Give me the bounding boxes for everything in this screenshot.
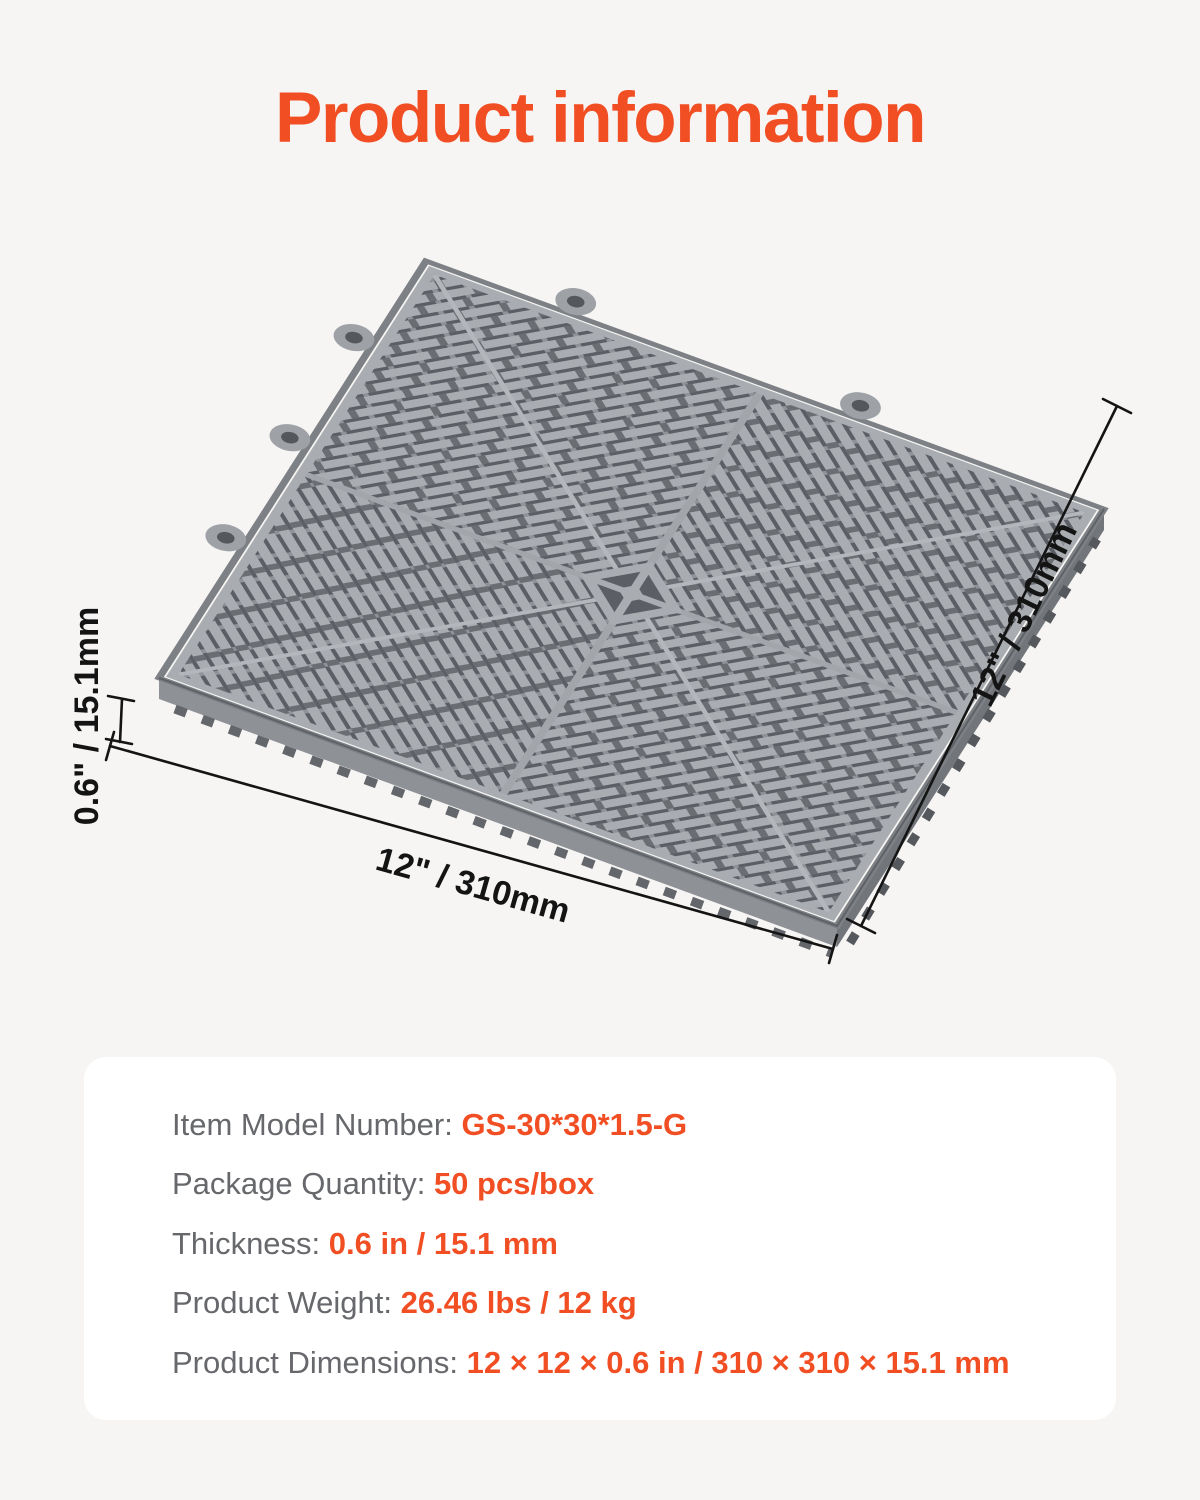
spec-label: Package Quantity: bbox=[172, 1166, 434, 1202]
spec-label: Product Weight: bbox=[172, 1285, 401, 1321]
dimension-label-bottom: 12" / 310mm bbox=[372, 840, 574, 931]
spec-row-dimensions: Product Dimensions: 12 × 12 × 0.6 in / 3… bbox=[172, 1333, 1076, 1393]
dimension-tick bbox=[1103, 399, 1131, 413]
thickness-marker bbox=[106, 696, 134, 744]
spec-row-model: Item Model Number: GS-30*30*1.5-G bbox=[172, 1095, 1076, 1155]
spec-label: Thickness: bbox=[172, 1226, 329, 1262]
dimension-tick bbox=[847, 919, 875, 933]
spec-row-thickness: Thickness: 0.6 in / 15.1 mm bbox=[172, 1214, 1076, 1274]
spec-value: 0.6 in / 15.1 mm bbox=[329, 1226, 558, 1262]
dimension-label-thickness: 0.6" / 15.1mm bbox=[68, 607, 106, 825]
spec-value: GS-30*30*1.5-G bbox=[461, 1107, 687, 1143]
spec-card: Item Model Number: GS-30*30*1.5-G Packag… bbox=[84, 1057, 1116, 1420]
spec-label: Item Model Number: bbox=[172, 1107, 461, 1143]
spec-value: 12 × 12 × 0.6 in / 310 × 310 × 15.1 mm bbox=[467, 1345, 1010, 1381]
spec-row-quantity: Package Quantity: 50 pcs/box bbox=[172, 1155, 1076, 1215]
spec-value: 26.46 lbs / 12 kg bbox=[401, 1285, 637, 1321]
product-information-page: { "title": "Product information", "figur… bbox=[0, 0, 1200, 1500]
spec-value: 50 pcs/box bbox=[434, 1166, 594, 1202]
spec-label: Product Dimensions: bbox=[172, 1345, 467, 1381]
spec-row-weight: Product Weight: 26.46 lbs / 12 kg bbox=[172, 1274, 1076, 1334]
